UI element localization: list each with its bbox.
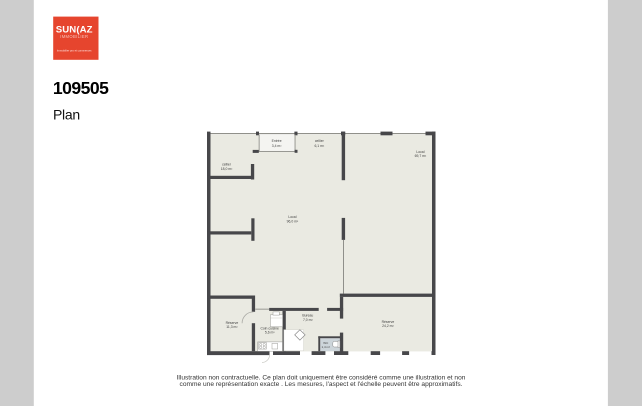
svg-text:6,1 m²: 6,1 m² — [314, 144, 324, 148]
svg-text:Réserve: Réserve — [226, 321, 239, 325]
svg-text:5,6 m²: 5,6 m² — [265, 331, 275, 335]
svg-text:18,0 m²: 18,0 m² — [221, 167, 233, 171]
svg-text:7,0 m²: 7,0 m² — [303, 318, 313, 322]
svg-text:109505: 109505 — [53, 78, 109, 98]
svg-text:cellier: cellier — [222, 163, 232, 167]
svg-text:11,3 m²: 11,3 m² — [226, 325, 238, 329]
svg-text:1,4 m²: 1,4 m² — [322, 345, 331, 349]
svg-text:69,7 m²: 69,7 m² — [415, 154, 427, 158]
svg-text:Entrée: Entrée — [272, 139, 282, 143]
svg-text:Plan: Plan — [53, 107, 80, 123]
svg-text:IMMOBILIER: IMMOBILIER — [60, 34, 88, 39]
svg-text:3,4 m²: 3,4 m² — [272, 144, 282, 148]
svg-text:24,2 m²: 24,2 m² — [382, 324, 394, 328]
svg-text:96,0 m²: 96,0 m² — [287, 219, 299, 223]
svg-text:cellier: cellier — [315, 139, 325, 143]
svg-text:Immobilier pro et commerces: Immobilier pro et commerces — [57, 48, 92, 52]
svg-text:comme une représentation exact: comme une représentation exacte . Les me… — [180, 381, 463, 388]
